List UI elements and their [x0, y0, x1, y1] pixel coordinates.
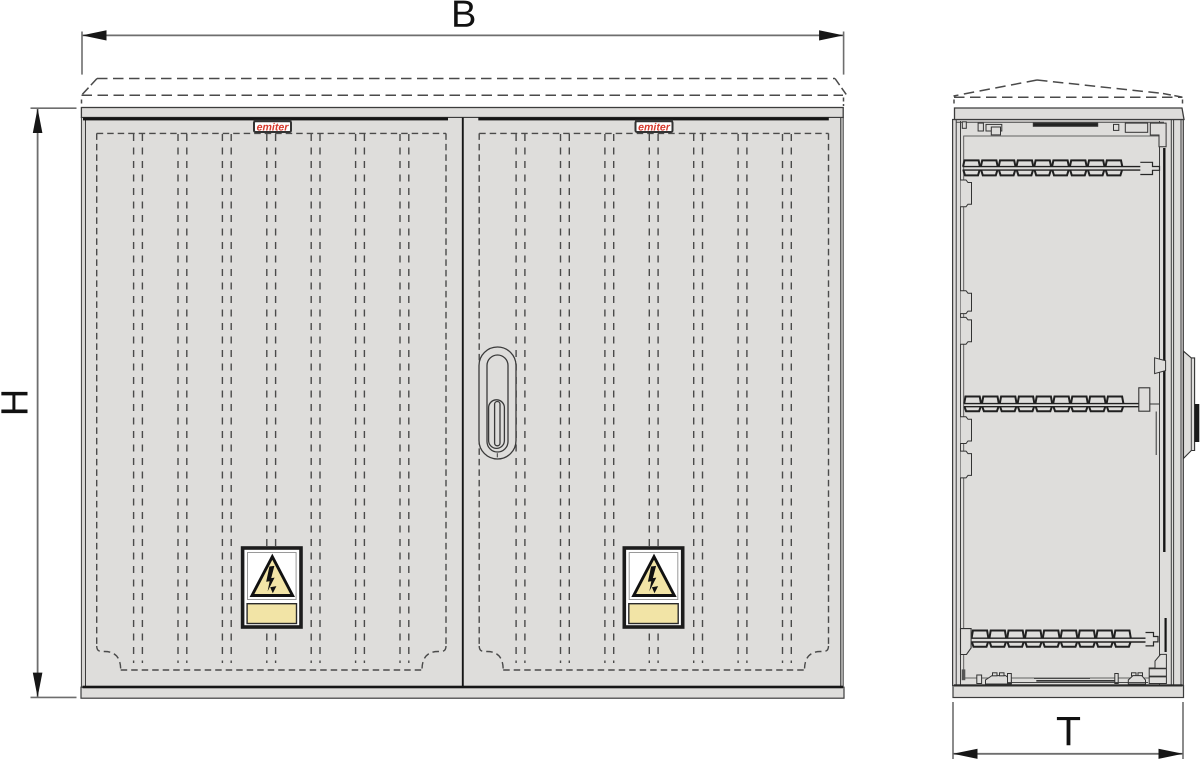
svg-text:emiter: emiter [638, 122, 671, 134]
svg-text:emiter: emiter [257, 122, 290, 134]
